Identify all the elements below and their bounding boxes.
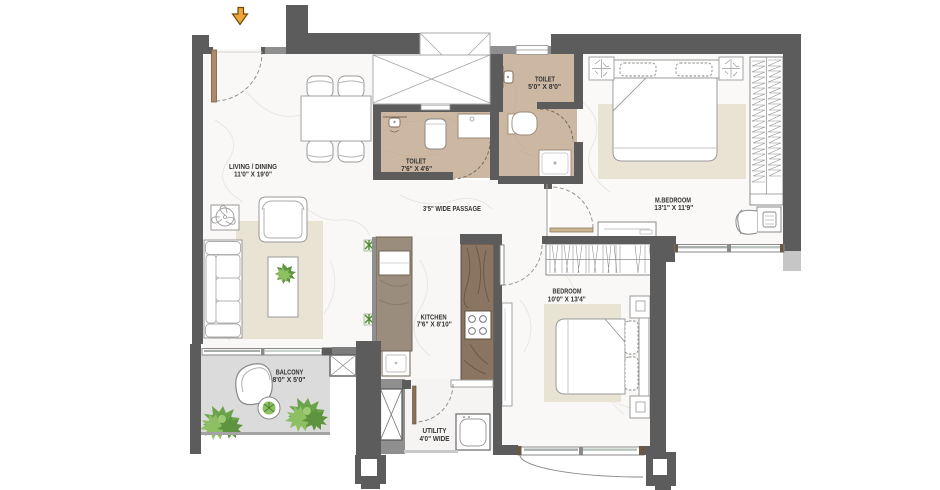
svg-text:TOILET: TOILET: [535, 75, 555, 84]
svg-text:BALCONY: BALCONY: [276, 367, 304, 376]
svg-text:TOILET: TOILET: [406, 157, 426, 166]
svg-text:5'0" X 8'0": 5'0" X 8'0": [528, 84, 561, 91]
svg-text:13'1" X 11'9": 13'1" X 11'9": [654, 205, 693, 212]
svg-text:UTILITY: UTILITY: [423, 426, 447, 435]
svg-text:10'0" X 13'4": 10'0" X 13'4": [548, 297, 586, 304]
svg-text:8'0" X 5'0": 8'0" X 5'0": [273, 377, 306, 384]
svg-text:3'5" WIDE PASSAGE: 3'5" WIDE PASSAGE: [423, 204, 481, 213]
svg-text:11'0" X 19'0": 11'0" X 19'0": [234, 172, 272, 179]
svg-text:LIVING / DINING: LIVING / DINING: [229, 162, 277, 171]
svg-text:M.BEDROOM: M.BEDROOM: [655, 196, 691, 205]
svg-text:KITCHEN: KITCHEN: [421, 312, 447, 321]
svg-text:7'6" X 4'6": 7'6" X 4'6": [401, 166, 432, 173]
svg-text:BEDROOM: BEDROOM: [553, 287, 582, 296]
svg-text:4'0" WIDE: 4'0" WIDE: [420, 436, 450, 443]
svg-text:7'6" X 8'10": 7'6" X 8'10": [417, 322, 452, 329]
